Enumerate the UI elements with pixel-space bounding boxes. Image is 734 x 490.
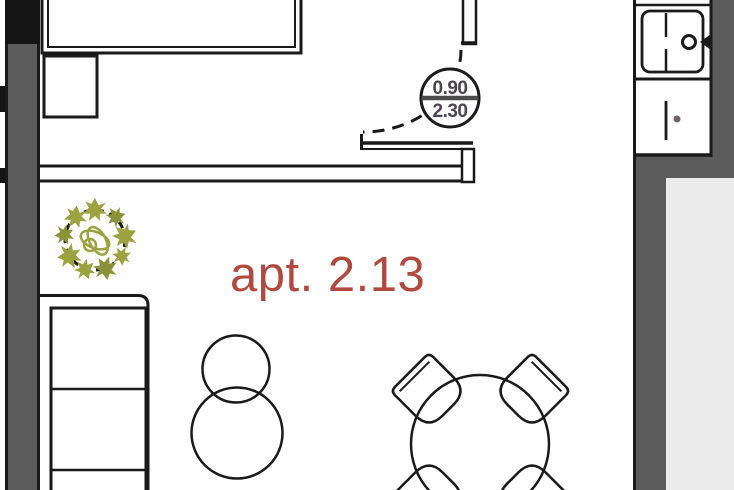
dining-chair-bottom-left xyxy=(391,459,467,490)
kitchen-appliance-bottom xyxy=(666,101,681,140)
bed xyxy=(42,0,301,53)
dining-set xyxy=(391,353,570,490)
badge-height-text: 2.30 xyxy=(433,101,468,122)
wardrobe xyxy=(40,296,148,490)
wall-stub-upper xyxy=(0,86,5,112)
apartment-label: apt. 2.13 xyxy=(230,248,425,302)
badge-width-text: 0.90 xyxy=(433,78,468,99)
dining-chair-bottom-right xyxy=(494,459,570,490)
wall-stub-lower xyxy=(0,168,5,183)
floorplan-page: 0.90 2.30 xyxy=(0,0,734,490)
door-jamb xyxy=(462,149,474,182)
side-table-large xyxy=(192,388,283,479)
appliance-knob-circle xyxy=(683,36,696,49)
dining-chair-top-left xyxy=(391,353,467,429)
appliance-dot xyxy=(674,116,681,123)
kitchen-appliance-top xyxy=(642,11,711,72)
entry-wall xyxy=(360,134,473,150)
dining-chair-top-right xyxy=(494,353,570,429)
right-wall-strip xyxy=(633,156,666,490)
neighbor-area xyxy=(666,178,734,490)
left-wall xyxy=(0,0,40,490)
nightstand xyxy=(44,56,97,117)
door-dimension-badge: 0.90 2.30 xyxy=(421,69,479,127)
divider-wall xyxy=(38,166,473,181)
wardrobe-inner xyxy=(51,308,146,490)
floorplan-svg: 0.90 2.30 xyxy=(0,0,734,490)
right-wall-top xyxy=(712,0,734,157)
dining-table xyxy=(411,375,549,490)
entry-door-leaf xyxy=(461,0,477,44)
plant-icon xyxy=(54,198,142,283)
